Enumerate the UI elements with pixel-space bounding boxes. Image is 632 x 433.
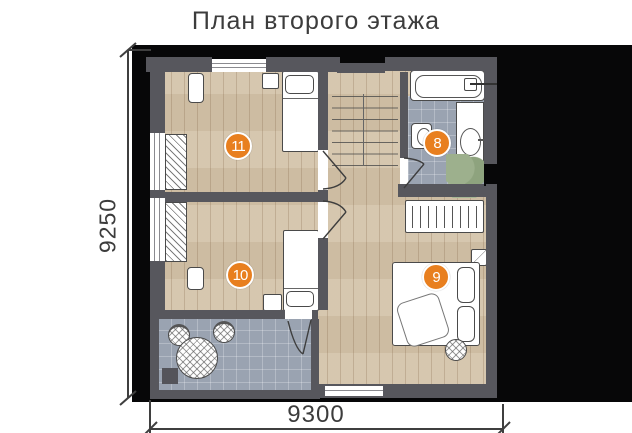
room-badge-10: 10 <box>226 261 254 289</box>
dimension-label-left: 9250 <box>95 195 122 257</box>
door-opening <box>318 202 328 238</box>
stair-stringer <box>363 94 364 166</box>
window-frame <box>159 198 160 261</box>
window-frame <box>154 133 155 190</box>
blanket <box>395 291 451 348</box>
radiator <box>165 202 187 262</box>
nightstand <box>262 73 279 89</box>
window <box>150 133 165 190</box>
blanket <box>284 231 318 289</box>
nightstand <box>263 294 282 311</box>
bathtub-icon <box>410 70 485 101</box>
room-badge-11: 11 <box>224 132 252 160</box>
dimension-label-bottom: 9300 <box>274 401 358 429</box>
pillow <box>286 291 314 307</box>
hanger-icons <box>412 206 477 228</box>
door-opening <box>318 150 328 190</box>
planter-box <box>162 368 178 384</box>
window <box>212 59 266 72</box>
dresser <box>188 73 204 103</box>
bed-single <box>282 71 319 152</box>
window-frame <box>325 390 383 391</box>
balcony-door-opening <box>285 310 312 319</box>
pillow <box>457 267 475 303</box>
blanket <box>283 98 318 152</box>
wall <box>266 57 340 72</box>
floor-plan-canvas: План второго этажа <box>0 0 632 433</box>
window-frame <box>159 133 160 190</box>
wall <box>165 192 328 202</box>
chair <box>213 321 235 343</box>
pillow <box>457 306 475 342</box>
room-badge-8: 8 <box>423 129 451 157</box>
staircase <box>332 96 398 166</box>
sink-icon <box>460 128 481 156</box>
stair-steps <box>332 96 398 166</box>
wall <box>337 63 385 73</box>
wall <box>484 70 497 166</box>
round-table <box>176 337 218 379</box>
wall <box>150 390 320 399</box>
window-frame <box>212 63 266 64</box>
radiator <box>165 134 187 190</box>
wall <box>311 319 319 390</box>
pillow <box>285 75 314 94</box>
window <box>325 386 383 396</box>
wall <box>385 57 497 71</box>
window <box>150 198 165 261</box>
wall <box>486 184 497 388</box>
wall <box>150 319 159 398</box>
round-rug <box>445 339 467 361</box>
facade-notch <box>484 164 498 186</box>
wall <box>398 184 497 197</box>
page-title: План второго этажа <box>0 7 632 36</box>
room-badge-9: 9 <box>422 263 450 291</box>
faucet-icon <box>464 78 477 91</box>
bed-single <box>283 230 319 311</box>
wardrobe <box>405 200 484 233</box>
dresser <box>187 267 204 290</box>
window-frame <box>212 67 266 68</box>
window-frame <box>154 198 155 261</box>
